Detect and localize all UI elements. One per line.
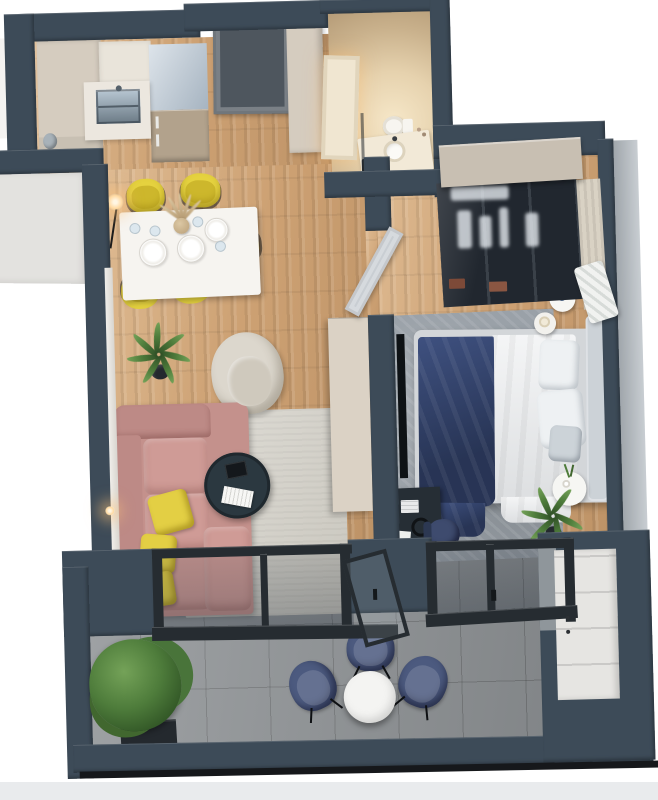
toiletry-bottle bbox=[417, 128, 421, 132]
exterior-panel-left bbox=[0, 171, 88, 284]
living-door-handle bbox=[373, 589, 377, 600]
bed-blanket bbox=[418, 336, 495, 507]
chair-seat bbox=[292, 665, 336, 710]
tv-sideboard bbox=[328, 317, 373, 512]
hanging-shirt bbox=[525, 212, 539, 246]
chair-seat bbox=[131, 185, 160, 210]
bed-pillow bbox=[538, 339, 580, 391]
wall-top-kitchen bbox=[18, 9, 201, 42]
wall-kitchen-left bbox=[4, 14, 38, 155]
refrigerator-front bbox=[150, 109, 209, 163]
dining-palm-plant bbox=[126, 322, 192, 388]
basin-faucet bbox=[392, 136, 397, 141]
wardrobe-towels bbox=[450, 185, 508, 201]
cabinet-handle bbox=[566, 616, 570, 620]
refrigerator-top bbox=[149, 43, 209, 110]
toiletry-bottle bbox=[422, 132, 426, 136]
bathroom-door bbox=[321, 55, 360, 160]
wardrobe-shelf-box bbox=[449, 278, 465, 288]
desk-book bbox=[401, 500, 419, 513]
living-glass-tint bbox=[152, 553, 354, 630]
hanging-shirt bbox=[499, 207, 509, 247]
wardrobe-top-panel bbox=[439, 137, 583, 188]
kitchen-counter-band bbox=[99, 41, 152, 84]
hanging-shirt bbox=[479, 216, 492, 248]
hanging-shirt bbox=[457, 210, 472, 248]
fridge-handle bbox=[156, 134, 159, 146]
apartment-plan bbox=[0, 0, 658, 800]
dining-chair bbox=[126, 178, 166, 214]
sofa-cushion bbox=[143, 437, 208, 495]
wall-top-entry bbox=[184, 0, 329, 32]
bedroom-door-handle bbox=[491, 590, 496, 601]
sofa-armrest bbox=[114, 403, 211, 440]
floor-plan-scene bbox=[0, 0, 658, 800]
fridge-handle bbox=[156, 116, 159, 128]
hall-cabinet bbox=[286, 12, 326, 153]
bed-pillow-accent bbox=[548, 425, 583, 463]
wardrobe-shelf-box bbox=[489, 281, 507, 291]
chair-seat bbox=[400, 660, 446, 707]
